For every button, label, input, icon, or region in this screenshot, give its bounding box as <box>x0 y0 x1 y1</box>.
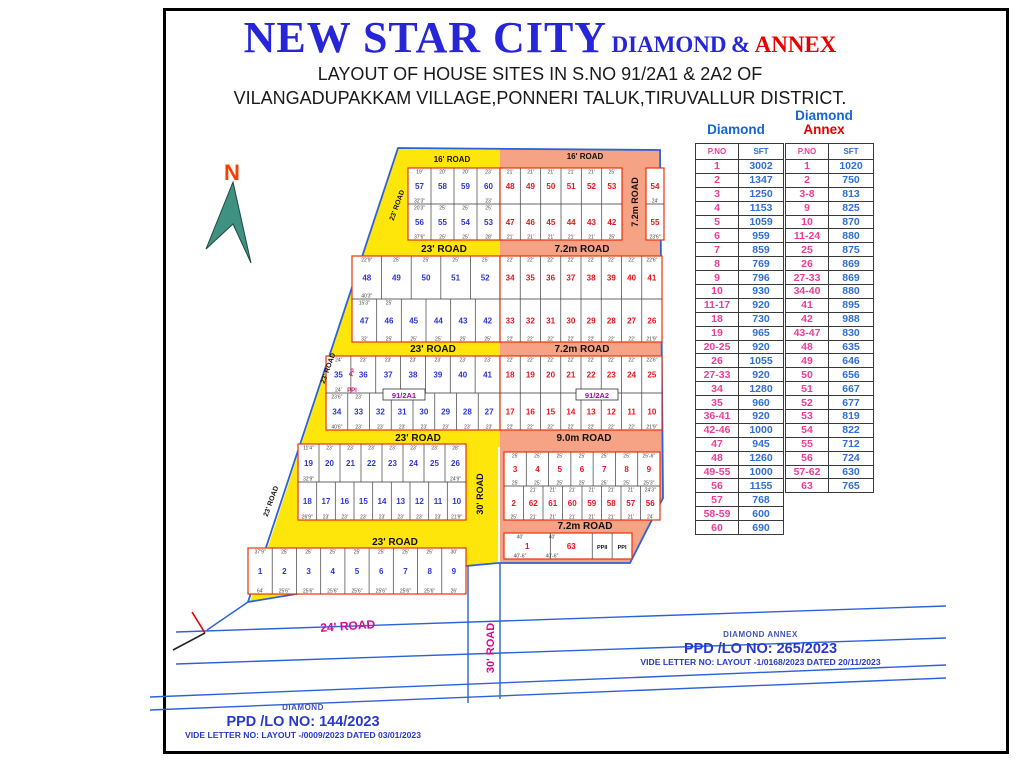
dimension-label: 21' <box>627 488 634 494</box>
table-cell: 869 <box>829 257 874 271</box>
dimension-label: 15'3" <box>359 301 370 307</box>
table-cell: 6 <box>696 229 739 243</box>
table-cell: 646 <box>829 354 874 368</box>
dimension-label: 25' <box>510 515 517 521</box>
dimension-label: 23' <box>485 170 492 176</box>
table-row: 57-62630 <box>786 465 874 479</box>
plot-number: 17 <box>322 497 331 506</box>
dimension-label: 37'6" <box>414 235 425 241</box>
dimension-label: 23' <box>377 425 384 431</box>
plot-number: 4 <box>535 465 540 474</box>
plot-number: 27 <box>627 317 636 326</box>
plot-number: 5 <box>557 465 562 474</box>
diamond-footer-tag: DIAMOND <box>168 703 438 712</box>
dimension-label: 32' <box>361 337 368 343</box>
plot-number: 23 <box>607 371 616 380</box>
table-cell: 48 <box>696 451 739 465</box>
dimension-label: 25' <box>439 206 446 212</box>
plot-number: 14 <box>566 408 575 417</box>
plot-number: 20 <box>546 371 555 380</box>
plot-number: 49 <box>392 274 401 283</box>
dimension-label: 23' <box>435 358 442 364</box>
table-cell: 1347 <box>739 173 784 187</box>
plot-number: 29 <box>441 408 450 417</box>
road-label: 30' ROAD <box>485 623 497 673</box>
table-cell: 880 <box>829 285 874 299</box>
table-row: 52677 <box>786 396 874 410</box>
plot-number: 12 <box>415 497 424 506</box>
plot-number: 45 <box>546 218 555 227</box>
table-cell: 10 <box>786 215 829 229</box>
table-cell: 945 <box>739 437 784 451</box>
table-row: 6959 <box>696 229 784 243</box>
plot-number: 42 <box>483 317 492 326</box>
dimension-label: 23' <box>416 515 423 521</box>
dimension-label: 21' <box>588 488 595 494</box>
plot-number: 17 <box>506 408 515 417</box>
plot-number: 48 <box>362 274 371 283</box>
survey-number-label: 91/2A2 <box>585 391 609 400</box>
road-label: 7.2m ROAD <box>554 344 609 355</box>
plot-number: 53 <box>607 182 616 191</box>
table-cell: 870 <box>829 215 874 229</box>
table-row: 26869 <box>786 257 874 271</box>
dimension-label: 22' <box>547 337 554 343</box>
road-label: 23' ROAD <box>395 433 441 444</box>
road-label: 9.0m ROAD <box>556 433 611 444</box>
dimension-label: 25' <box>534 454 541 460</box>
dimension-label: 25' <box>410 337 417 343</box>
table-cell: 1155 <box>739 479 784 493</box>
dimension-label: 21' <box>507 235 514 241</box>
dimension-label: 25' <box>460 337 467 343</box>
plot-number: 28 <box>463 408 472 417</box>
table-cell: 8 <box>696 257 739 271</box>
dimension-label: 21'9" <box>451 515 462 521</box>
plot-number: 59 <box>587 499 596 508</box>
plot-number: 2 <box>512 499 517 508</box>
dimension-label: 23' <box>435 515 442 521</box>
dimension-label: 22' <box>527 358 534 364</box>
dimension-label: 24' <box>647 515 654 521</box>
dimension-label: 22' <box>547 258 554 264</box>
north-arrow: N <box>206 160 251 263</box>
table-row: 11020 <box>786 160 874 174</box>
table-cell: 27-33 <box>786 271 829 285</box>
dimension-label: 21' <box>588 235 595 241</box>
table-cell: 27-33 <box>696 368 739 382</box>
table-cell: 51 <box>786 382 829 396</box>
table-row: 19965 <box>696 326 784 340</box>
table-cell: 9 <box>696 271 739 285</box>
table-row: 561155 <box>696 479 784 493</box>
table-cell: 42-46 <box>696 423 739 437</box>
table-cell: 600 <box>739 507 784 521</box>
plot-number: 27 <box>485 408 494 417</box>
dimension-label: 25' <box>393 258 400 264</box>
table-cell: 859 <box>739 243 784 257</box>
table-cell: 47 <box>696 437 739 451</box>
dimension-label: 28' <box>485 235 492 241</box>
dimension-label: 21' <box>588 515 595 521</box>
dimension-label: 22' <box>527 258 534 264</box>
plot-number: 9 <box>452 567 457 576</box>
dimension-label: 23' <box>421 425 428 431</box>
pp-label: PPI <box>347 388 357 394</box>
dimension-label: 23' <box>355 425 362 431</box>
table-cell: 730 <box>739 312 784 326</box>
table-cell: 34-40 <box>786 285 829 299</box>
plot-number: 54 <box>461 218 470 227</box>
north-label: N <box>224 160 240 185</box>
dimension-label: 25' <box>462 206 469 212</box>
dimension-label: 23'6" <box>331 395 342 401</box>
dimension-label: 21'9" <box>646 337 657 343</box>
plot-number: 8 <box>427 567 432 576</box>
dimension-label: 23' <box>410 446 417 452</box>
plot-number: 54 <box>651 182 660 191</box>
plot-number: 13 <box>587 408 596 417</box>
dimension-label: 25' <box>556 454 563 460</box>
table-cell: 3 <box>696 187 739 201</box>
plot-number: 16 <box>526 408 535 417</box>
dimension-label: 25' <box>609 170 616 176</box>
dimension-label: 25' <box>623 454 630 460</box>
table-row: 21347 <box>696 173 784 187</box>
dimension-label: 22' <box>547 425 554 431</box>
table-cell: 1153 <box>739 201 784 215</box>
dimension-label: 22' <box>588 358 595 364</box>
plot-number: 56 <box>415 218 424 227</box>
table-row: 58-59600 <box>696 507 784 521</box>
plot-number: 14 <box>378 497 387 506</box>
table-cell: 52 <box>786 396 829 410</box>
dimension-label: 22' <box>568 258 575 264</box>
plot-number: 15 <box>359 497 368 506</box>
dimension-label: 25' <box>609 235 616 241</box>
dimension-label: 23'6" <box>649 235 660 241</box>
table-cell: 26 <box>696 354 739 368</box>
dimension-label: 24'3" <box>645 488 656 494</box>
boundary-segment <box>207 602 248 630</box>
dimension-label: 25'6" <box>424 589 435 595</box>
table-row: 49-551000 <box>696 465 784 479</box>
plot-number: 29 <box>587 317 596 326</box>
road-label: 7.2m ROAD <box>554 244 609 255</box>
dimension-label: 21' <box>569 515 576 521</box>
table-cell: 60 <box>696 521 739 535</box>
table-cell: 920 <box>739 298 784 312</box>
table-cell: 1250 <box>739 187 784 201</box>
table-row: 48635 <box>786 340 874 354</box>
plot-number: 61 <box>548 499 557 508</box>
table-cell: 7 <box>696 243 739 257</box>
table-cell: 19 <box>696 326 739 340</box>
plot-number: 40 <box>627 274 636 283</box>
dimension-label: 21' <box>568 170 575 176</box>
dimension-label: 25'6" <box>279 589 290 595</box>
plot-number: 46 <box>385 317 394 326</box>
annex-title-line2: Annex <box>783 123 865 137</box>
plot-number: 44 <box>567 218 576 227</box>
plot-number: 59 <box>461 182 470 191</box>
plot-number: 30 <box>566 317 575 326</box>
table-cell: 1280 <box>739 382 784 396</box>
table-row: 25875 <box>786 243 874 257</box>
dimension-label: 22' <box>628 337 635 343</box>
table-row: 27-33869 <box>786 271 874 285</box>
dimension-label: 40'-6" <box>546 554 559 560</box>
table-row: 57768 <box>696 493 784 507</box>
dimension-label: 25' <box>485 206 492 212</box>
table-cell: 690 <box>739 521 784 535</box>
dimension-label: 22' <box>588 258 595 264</box>
plot-number: 18 <box>303 497 312 506</box>
road-label: 23' ROAD <box>410 344 456 355</box>
table-cell: 49 <box>786 354 829 368</box>
plot-number: 53 <box>484 218 493 227</box>
plot-number: 8 <box>624 465 629 474</box>
plot-number: PPI <box>618 545 627 551</box>
table-cell: 712 <box>829 437 874 451</box>
table-row: 51059 <box>696 215 784 229</box>
table-cell: 25 <box>786 243 829 257</box>
plot-number: 57 <box>626 499 635 508</box>
dimension-label: 22' <box>527 425 534 431</box>
dimension-label: 22' <box>568 358 575 364</box>
table-cell: 920 <box>739 340 784 354</box>
plot-number: 6 <box>379 567 384 576</box>
table-cell: 5 <box>696 215 739 229</box>
plot-number: 37 <box>384 371 393 380</box>
table-row: 10930 <box>696 285 784 299</box>
annex-approval-footer: DIAMOND ANNEX PPD /LO NO: 265/2023 VIDE … <box>638 630 883 667</box>
table-cell: SFT <box>739 144 784 160</box>
table-row: 47945 <box>696 437 784 451</box>
plot-number: 51 <box>567 182 576 191</box>
annex-area-table: P.NOSFT1102027503-881398251087011-248802… <box>785 143 874 493</box>
table-row: 261055 <box>696 354 784 368</box>
dimension-label: 22' <box>608 337 615 343</box>
table-cell: 10 <box>696 285 739 299</box>
dimension-label: 25' <box>439 235 446 241</box>
plot-number: 25 <box>647 371 656 380</box>
dimension-label: 23' <box>410 358 417 364</box>
table-cell: 959 <box>739 229 784 243</box>
annex-footer-tag: DIAMOND ANNEX <box>638 630 883 639</box>
plot-number: 40 <box>458 371 467 380</box>
dimension-label: 22' <box>628 358 635 364</box>
dimension-label: 22'6" <box>646 358 657 364</box>
table-cell: 50 <box>786 368 829 382</box>
plot-number: 37 <box>566 274 575 283</box>
table-cell: 830 <box>829 326 874 340</box>
table-cell: 822 <box>829 423 874 437</box>
dimension-label: 22' <box>628 258 635 264</box>
table-row: 18730 <box>696 312 784 326</box>
table-cell: 819 <box>829 410 874 424</box>
table-cell: 677 <box>829 396 874 410</box>
dimension-label: 23' <box>385 358 392 364</box>
plot-number: 20 <box>325 459 334 468</box>
plot-number: 35 <box>526 274 535 283</box>
table-row: 54822 <box>786 423 874 437</box>
dimension-label: 25'6" <box>351 589 362 595</box>
dimension-label: 25' <box>354 550 361 556</box>
dimension-label: 23' <box>360 515 367 521</box>
road-label: 23' ROAD <box>421 244 467 255</box>
plot-number: 13 <box>396 497 405 506</box>
table-row: 11-17920 <box>696 298 784 312</box>
table-cell: 2 <box>696 173 739 187</box>
plot-number: 55 <box>438 218 447 227</box>
dimension-label: 22' <box>547 358 554 364</box>
table-cell: 1059 <box>739 215 784 229</box>
table-cell: 920 <box>739 368 784 382</box>
table-cell: 43-47 <box>786 326 829 340</box>
table-cell: 1000 <box>739 465 784 479</box>
table-cell: 3002 <box>739 160 784 174</box>
table-row: 3-8813 <box>786 187 874 201</box>
dimension-label: 25'6" <box>376 589 387 595</box>
dimension-label: 25' <box>579 454 586 460</box>
table-cell: 34 <box>696 382 739 396</box>
annex-title-line1: Diamond <box>783 109 865 123</box>
dimension-label: 40' <box>549 535 556 541</box>
table-row: 35960 <box>696 396 784 410</box>
table-cell: P.NO <box>786 144 829 160</box>
dimension-label: 25' <box>426 550 433 556</box>
table-cell: 1260 <box>739 451 784 465</box>
dimension-label: 25'6" <box>303 589 314 595</box>
plot-number: 24 <box>409 459 418 468</box>
plot-number: 58 <box>438 182 447 191</box>
black-boundary-segment <box>173 633 205 650</box>
table-header-row: P.NOSFT <box>786 144 874 160</box>
dimension-label: 25' <box>305 550 312 556</box>
plot-number: 56 <box>646 499 655 508</box>
dimension-label: 21' <box>588 170 595 176</box>
annex-ppd-number: PPD /LO NO: 265/2023 <box>638 641 883 657</box>
table-row: 11-24880 <box>786 229 874 243</box>
dimension-label: 22' <box>608 258 615 264</box>
plot-number: 38 <box>587 274 596 283</box>
table-cell: 26 <box>786 257 829 271</box>
dimension-label: 23' <box>347 446 354 452</box>
plot-number: 35 <box>334 371 343 380</box>
table-row: 34-40880 <box>786 285 874 299</box>
plot-number: 25 <box>430 459 439 468</box>
plot-number: 3 <box>306 567 311 576</box>
plot-number: 33 <box>506 317 515 326</box>
plot-number: 52 <box>481 274 490 283</box>
table-row: 8769 <box>696 257 784 271</box>
table-row: 55712 <box>786 437 874 451</box>
diamond-ppd-number: PPD /LO NO: 144/2023 <box>168 714 438 730</box>
table-row: 53819 <box>786 410 874 424</box>
table-row: 41895 <box>786 298 874 312</box>
dimension-label: 23' <box>486 425 493 431</box>
dimension-label: 26'9" <box>302 515 313 521</box>
plot-number: 11 <box>434 497 443 506</box>
table-cell: 18 <box>696 312 739 326</box>
dimension-label: 25' <box>423 258 430 264</box>
plot-number: 18 <box>506 371 515 380</box>
dimension-label: 25' <box>601 454 608 460</box>
dimension-label: 22' <box>507 258 514 264</box>
plot-number: 31 <box>398 408 407 417</box>
plot-number: 11 <box>627 408 636 417</box>
table-row: 31250 <box>696 187 784 201</box>
table-cell: 724 <box>829 451 874 465</box>
dimension-label: 22' <box>507 337 514 343</box>
dimension-label: 25'6" <box>400 589 411 595</box>
plot-number: 26 <box>451 459 460 468</box>
dimension-label: 19' <box>416 170 423 176</box>
dimension-label: 25' <box>281 550 288 556</box>
dimension-label: 22' <box>527 337 534 343</box>
table-cell: 750 <box>829 173 874 187</box>
table-cell: 1020 <box>829 160 874 174</box>
dimension-label: 23' <box>379 515 386 521</box>
dimension-label: 25' <box>378 550 385 556</box>
dimension-label: 21' <box>627 515 634 521</box>
plot-number: 46 <box>526 218 535 227</box>
red-boundary-segment <box>192 612 205 633</box>
table-row: 481260 <box>696 451 784 465</box>
plot-number: 10 <box>452 497 461 506</box>
table-cell: 635 <box>829 340 874 354</box>
plot-number: PPII <box>597 545 608 551</box>
plot-number: 39 <box>607 274 616 283</box>
annex-table-title: Diamond Annex <box>783 109 865 137</box>
plot-number: 16 <box>340 497 349 506</box>
dimension-label: 23' <box>360 358 367 364</box>
table-row: 2750 <box>786 173 874 187</box>
dimension-label: 25'-6" <box>642 454 655 460</box>
plot-number: 45 <box>409 317 418 326</box>
plot-number: 49 <box>526 182 535 191</box>
table-row: 27-33920 <box>696 368 784 382</box>
table-cell: 41 <box>786 298 829 312</box>
dimension-label: 22' <box>588 337 595 343</box>
table-row: 50656 <box>786 368 874 382</box>
table-row: 7859 <box>696 243 784 257</box>
plot-number: 23 <box>388 459 397 468</box>
table-row: 20-25920 <box>696 340 784 354</box>
table-row: 13002 <box>696 160 784 174</box>
dimension-label: 20' <box>439 170 446 176</box>
north-arrow-shape <box>206 182 251 263</box>
plot-number: 50 <box>546 182 555 191</box>
plot-number: 38 <box>409 371 418 380</box>
dimension-label: 23' <box>397 515 404 521</box>
plot-number: 19 <box>304 459 313 468</box>
plot-number: 41 <box>647 274 656 283</box>
plot-number: 32 <box>376 408 385 417</box>
plot-number: 34 <box>332 408 341 417</box>
plot-number: 4 <box>331 567 336 576</box>
table-row: 36-41920 <box>696 410 784 424</box>
plot-number: 60 <box>484 182 493 191</box>
table-cell: 1000 <box>739 423 784 437</box>
dimension-label: 21'9" <box>646 425 657 431</box>
table-cell: 55 <box>786 437 829 451</box>
table-row: 42988 <box>786 312 874 326</box>
table-cell: 57-62 <box>786 465 829 479</box>
diamond-table-title: Diamond <box>693 123 779 137</box>
dimension-label: 20' <box>462 170 469 176</box>
